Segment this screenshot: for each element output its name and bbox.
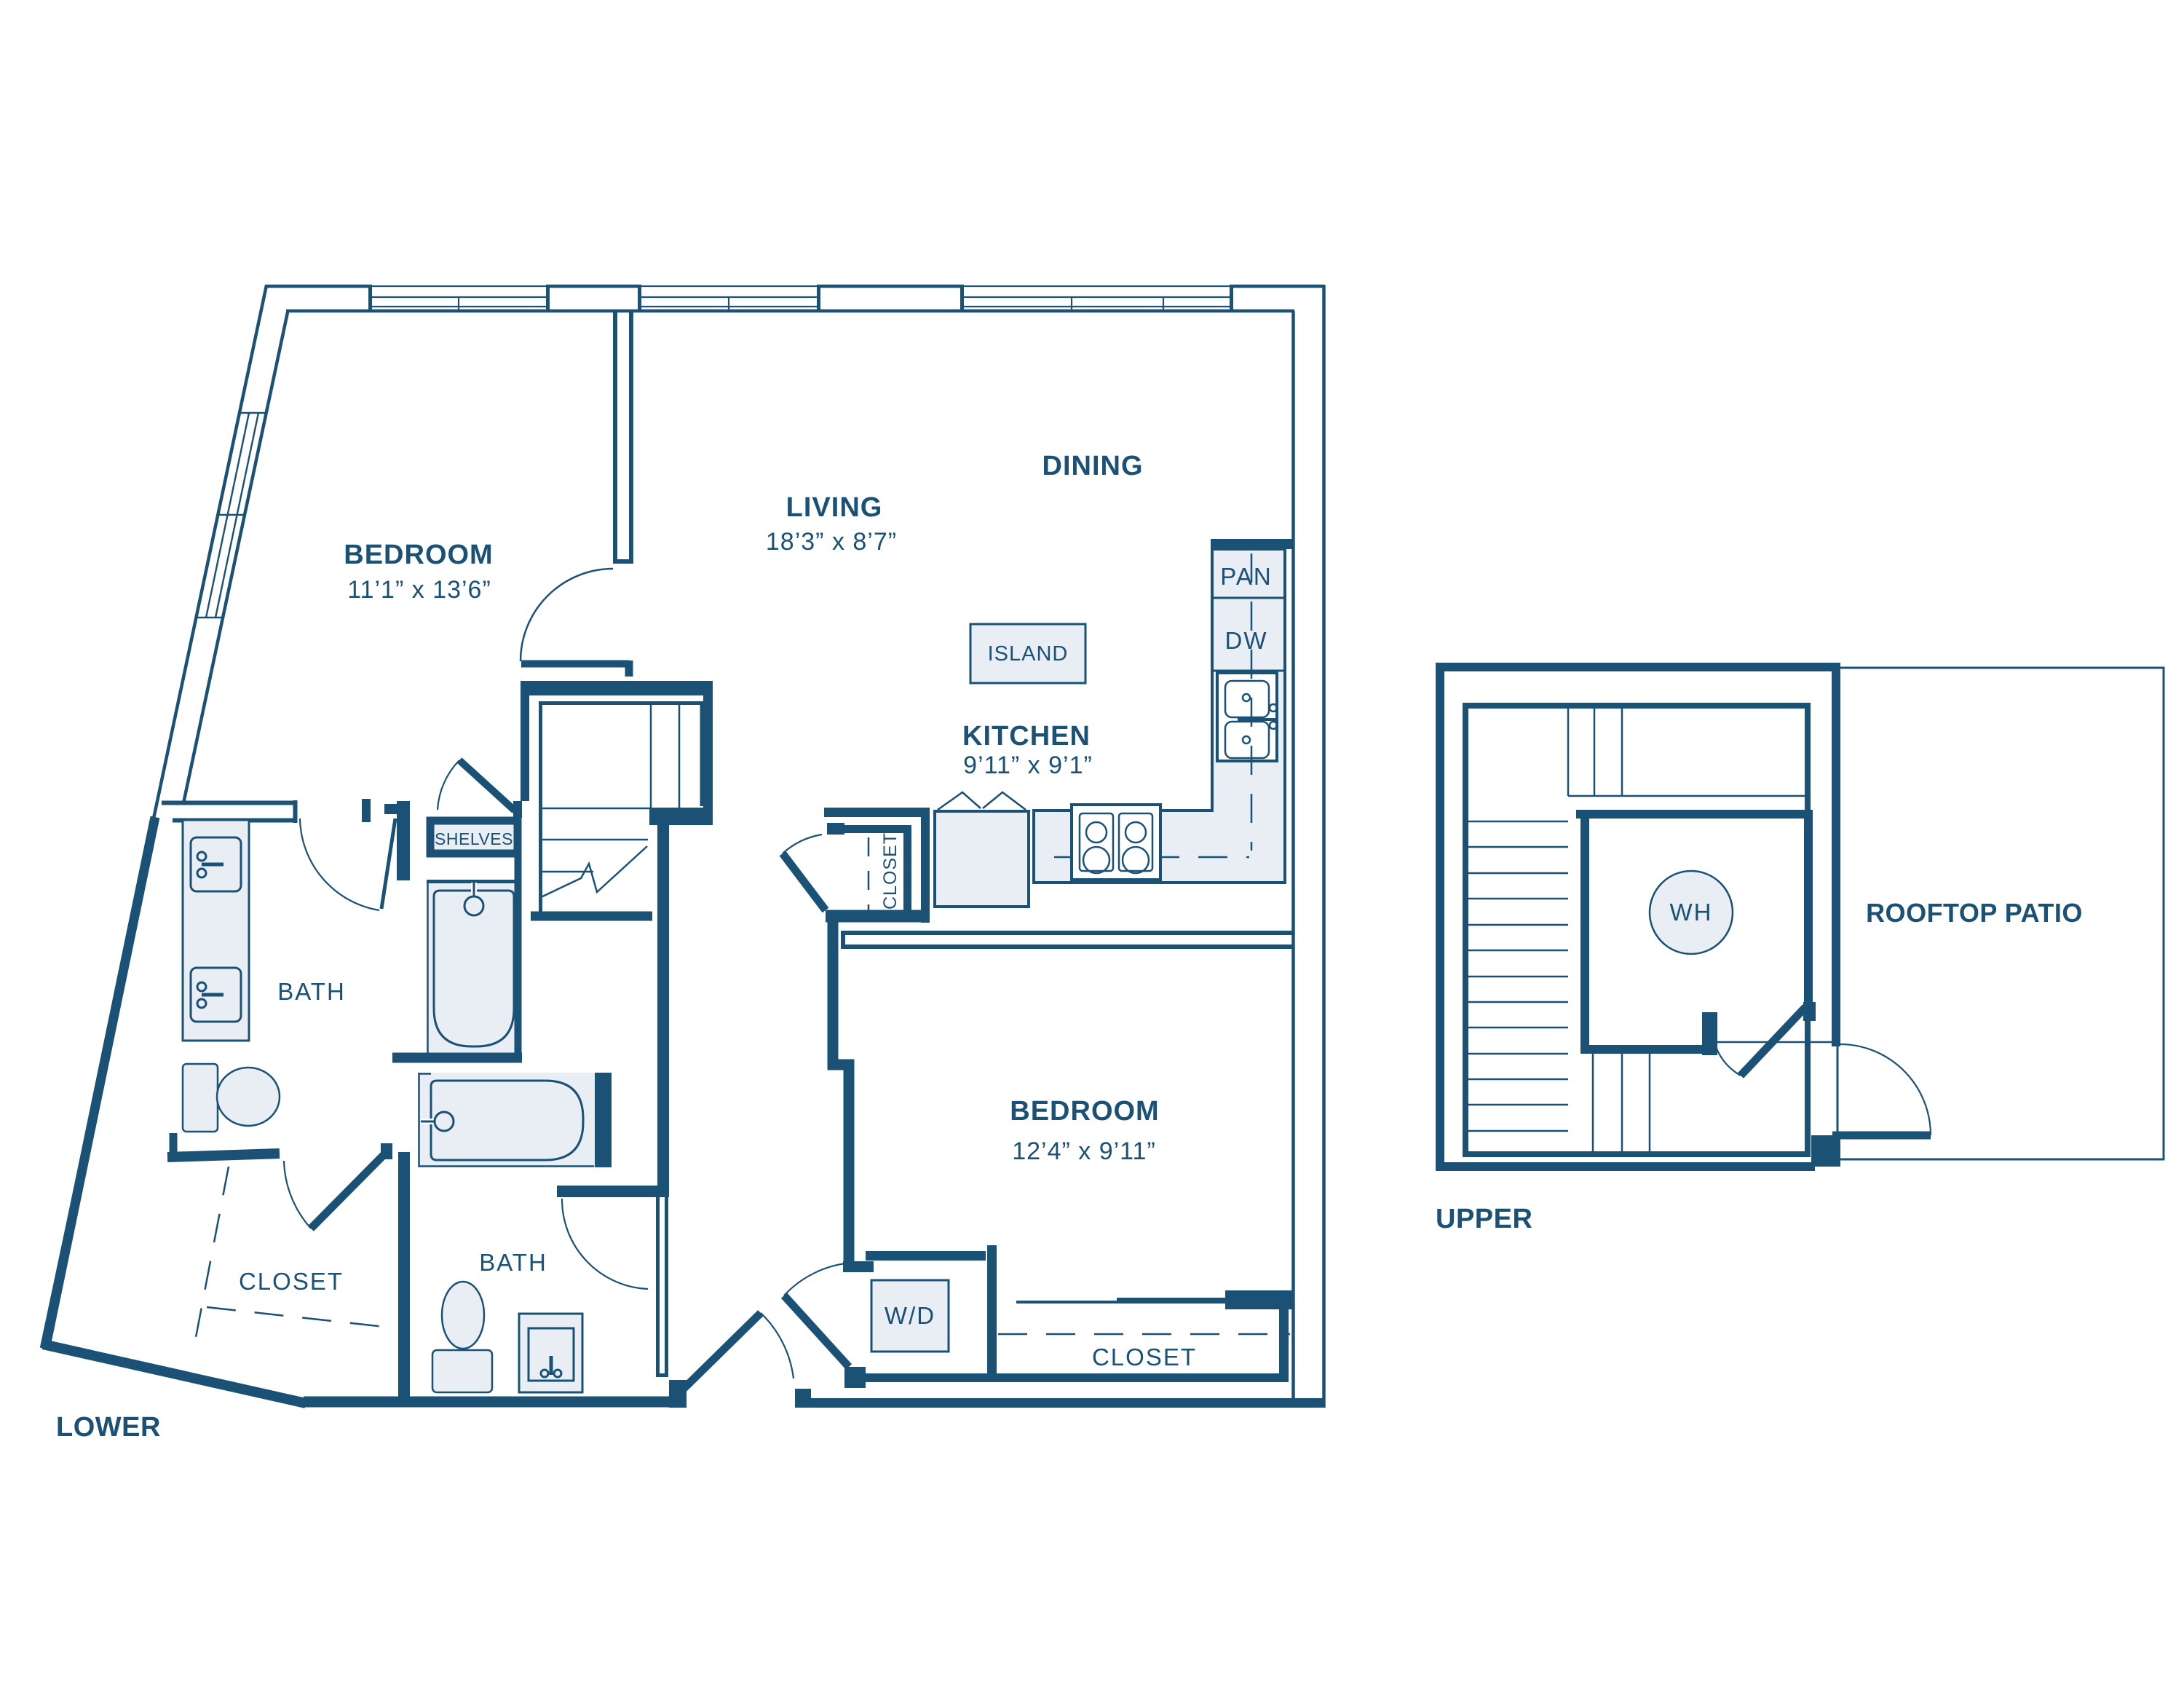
svg-text:LOWER: LOWER — [56, 1412, 161, 1443]
svg-text:DW: DW — [1225, 627, 1268, 654]
svg-text:CLOSET: CLOSET — [239, 1268, 344, 1295]
svg-text:SHELVES: SHELVES — [435, 829, 513, 848]
svg-text:WH: WH — [1670, 899, 1713, 926]
svg-text:LIVING: LIVING — [786, 492, 883, 523]
svg-text:ISLAND: ISLAND — [988, 642, 1069, 666]
svg-text:UPPER: UPPER — [1436, 1204, 1532, 1234]
svg-text:PAN: PAN — [1220, 563, 1272, 590]
svg-text:W/D: W/D — [885, 1302, 935, 1329]
svg-text:12’4” x 9’11”: 12’4” x 9’11” — [1012, 1137, 1156, 1165]
svg-text:BATH: BATH — [479, 1249, 547, 1276]
svg-text:ROOFTOP PATIO: ROOFTOP PATIO — [1866, 898, 2083, 928]
svg-text:CLOSET: CLOSET — [880, 832, 901, 910]
svg-text:9’11” x 9’1”: 9’11” x 9’1” — [963, 752, 1093, 779]
svg-text:CLOSET: CLOSET — [1092, 1344, 1197, 1370]
svg-text:BEDROOM: BEDROOM — [344, 540, 493, 570]
svg-text:11’1” x 13’6”: 11’1” x 13’6” — [347, 576, 491, 604]
svg-text:BEDROOM: BEDROOM — [1010, 1096, 1159, 1127]
svg-text:DINING: DINING — [1042, 451, 1144, 481]
svg-text:KITCHEN: KITCHEN — [962, 721, 1091, 752]
svg-text:BATH: BATH — [277, 978, 346, 1005]
svg-text:18’3” x 8’7”: 18’3” x 8’7” — [766, 528, 897, 556]
